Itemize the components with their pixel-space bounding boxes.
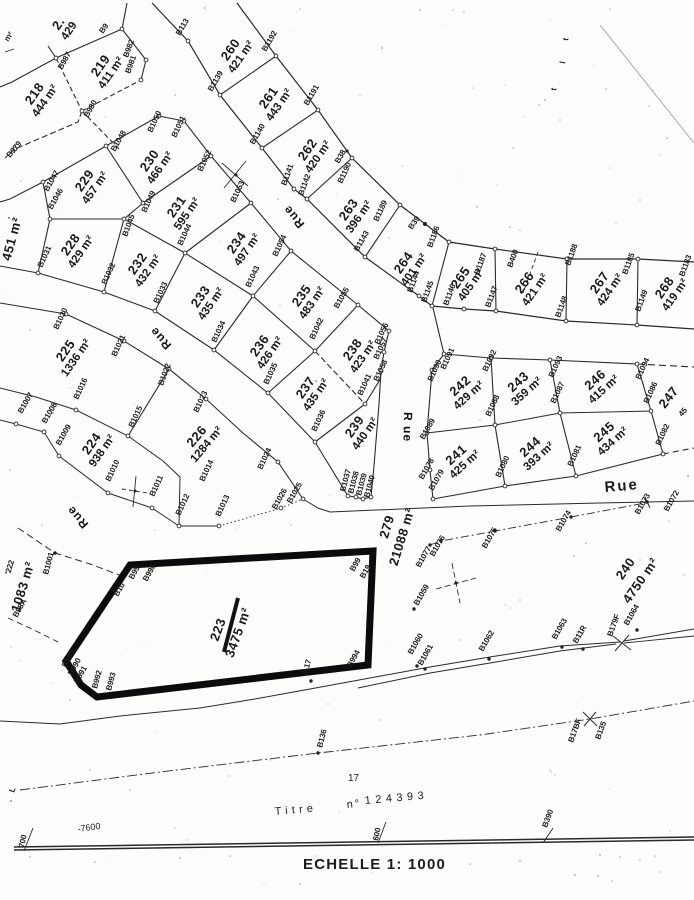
svg-text:B390: B390 [540,808,555,829]
svg-text:B135: B135 [593,720,608,741]
svg-text:B1020: B1020 [52,306,70,331]
svg-text:B1075: B1075 [480,525,499,550]
svg-text:B1041: B1041 [356,372,374,397]
svg-text:B9: B9 [97,21,110,35]
svg-text:l: l [558,61,567,65]
svg-text:Titre: Titre [274,802,317,818]
svg-text:B1141: B1141 [279,162,295,187]
svg-text:B1073: B1073 [633,491,652,516]
svg-text:B1032: B1032 [100,261,118,286]
svg-text:B1072: B1072 [662,488,681,513]
svg-text:B979: B979 [5,139,24,159]
svg-text:B1088: B1088 [484,393,502,418]
svg-text:B1093: B1093 [547,354,565,379]
svg-text:ECHELLE 1: 1000: ECHELLE 1: 1000 [303,856,446,873]
svg-text:600: 600 [371,826,383,841]
svg-text:B136: B136 [315,728,329,749]
svg-text:B1074: B1074 [554,508,573,533]
svg-text:B1043: B1043 [244,264,262,289]
svg-text:B1147: B1147 [483,284,499,309]
svg-text:B179F: B179F [605,613,621,638]
svg-text:B1183: B1183 [677,253,693,278]
svg-text:B1036: B1036 [310,408,328,433]
svg-text:B1008: B1008 [40,400,59,425]
svg-text:'222: '222 [3,558,16,575]
svg-text:B1192: B1192 [260,29,279,53]
svg-text:B1186: B1186 [425,224,441,249]
svg-text:B1148: B1148 [553,294,569,319]
svg-text:B1001: B1001 [41,551,56,576]
svg-text:B1012: B1012 [174,492,192,517]
svg-text:B11R: B11R [571,623,589,645]
svg-text:B1015: B1015 [127,404,145,429]
svg-text:B1052: B1052 [196,148,214,173]
svg-text:45: 45 [677,405,690,418]
svg-text:B17BF: B17BF [566,717,583,743]
svg-text:B1034: B1034 [210,319,228,344]
svg-text:B1059: B1059 [412,582,431,607]
svg-text:B1011: B1011 [148,473,166,498]
svg-text:B1048: B1048 [109,128,128,153]
svg-text:B1007: B1007 [16,390,35,415]
svg-text:B1149: B1149 [633,288,649,313]
svg-text:B1082: B1082 [654,422,672,447]
svg-text:n°: n° [346,798,362,811]
svg-text:B1089: B1089 [418,416,437,441]
svg-text:B1050: B1050 [146,109,164,134]
svg-text:R ue: R ue [400,412,415,442]
svg-text:B1013: B1013 [214,493,232,518]
svg-text:B1080: B1080 [494,454,512,479]
svg-text:B1022: B1022 [156,362,172,387]
svg-text:17: 17 [348,773,360,784]
svg-text:B1042: B1042 [308,316,326,341]
svg-text:Rue: Rue [604,476,640,496]
svg-text:451 m²: 451 m² [0,215,25,262]
svg-text:B1033: B1033 [152,280,170,305]
svg-text:B1185: B1185 [620,251,636,276]
svg-text:3475 m²: 3475 m² [222,605,254,659]
svg-text:B987: B987 [56,50,73,71]
svg-text:-7600: -7600 [77,821,101,834]
svg-text:B1031: B1031 [36,244,54,269]
svg-text:B1064: B1064 [622,602,641,627]
svg-text:m²: m² [2,30,15,43]
svg-text:B39: B39 [406,214,422,231]
svg-text:B982: B982 [121,38,136,59]
svg-text:B1051: B1051 [170,114,188,139]
svg-text:B980: B980 [82,98,99,119]
svg-text:Rue: Rue [64,503,92,531]
svg-text:B1021: B1021 [110,333,128,358]
svg-text:B1058: B1058 [372,358,390,383]
svg-text:B1062: B1062 [477,628,496,653]
svg-text:t: t [549,87,558,92]
svg-text:B1016: B1016 [72,376,90,401]
svg-text:B1094: B1094 [634,356,652,381]
svg-text:B113: B113 [174,16,191,37]
svg-text:B1024: B1024 [256,446,274,471]
svg-text:B1023: B1023 [192,389,210,414]
svg-text:B993: B993 [104,671,118,692]
svg-text:B1010: B1010 [104,458,122,483]
svg-text:247: 247 [655,383,681,411]
svg-text:124393: 124393 [364,789,429,807]
svg-text:B1189: B1189 [372,198,390,223]
svg-text:B1087: B1087 [549,380,567,405]
svg-text:B992: B992 [90,669,104,690]
svg-text:L: L [7,786,17,794]
svg-text:B1139: B1139 [206,69,225,93]
svg-text:B1191: B1191 [302,83,321,107]
svg-text:B1063: B1063 [550,616,569,641]
svg-text:t: t [561,37,570,42]
svg-text:B1188: B1188 [563,242,579,267]
svg-text:·: · [6,798,15,803]
svg-text:B1009: B1009 [54,422,73,447]
svg-text:B1142: B1142 [296,172,312,197]
svg-text:Rue: Rue [147,324,175,352]
svg-text:Rue: Rue [280,202,307,231]
svg-text:B1092: B1092 [481,348,499,373]
